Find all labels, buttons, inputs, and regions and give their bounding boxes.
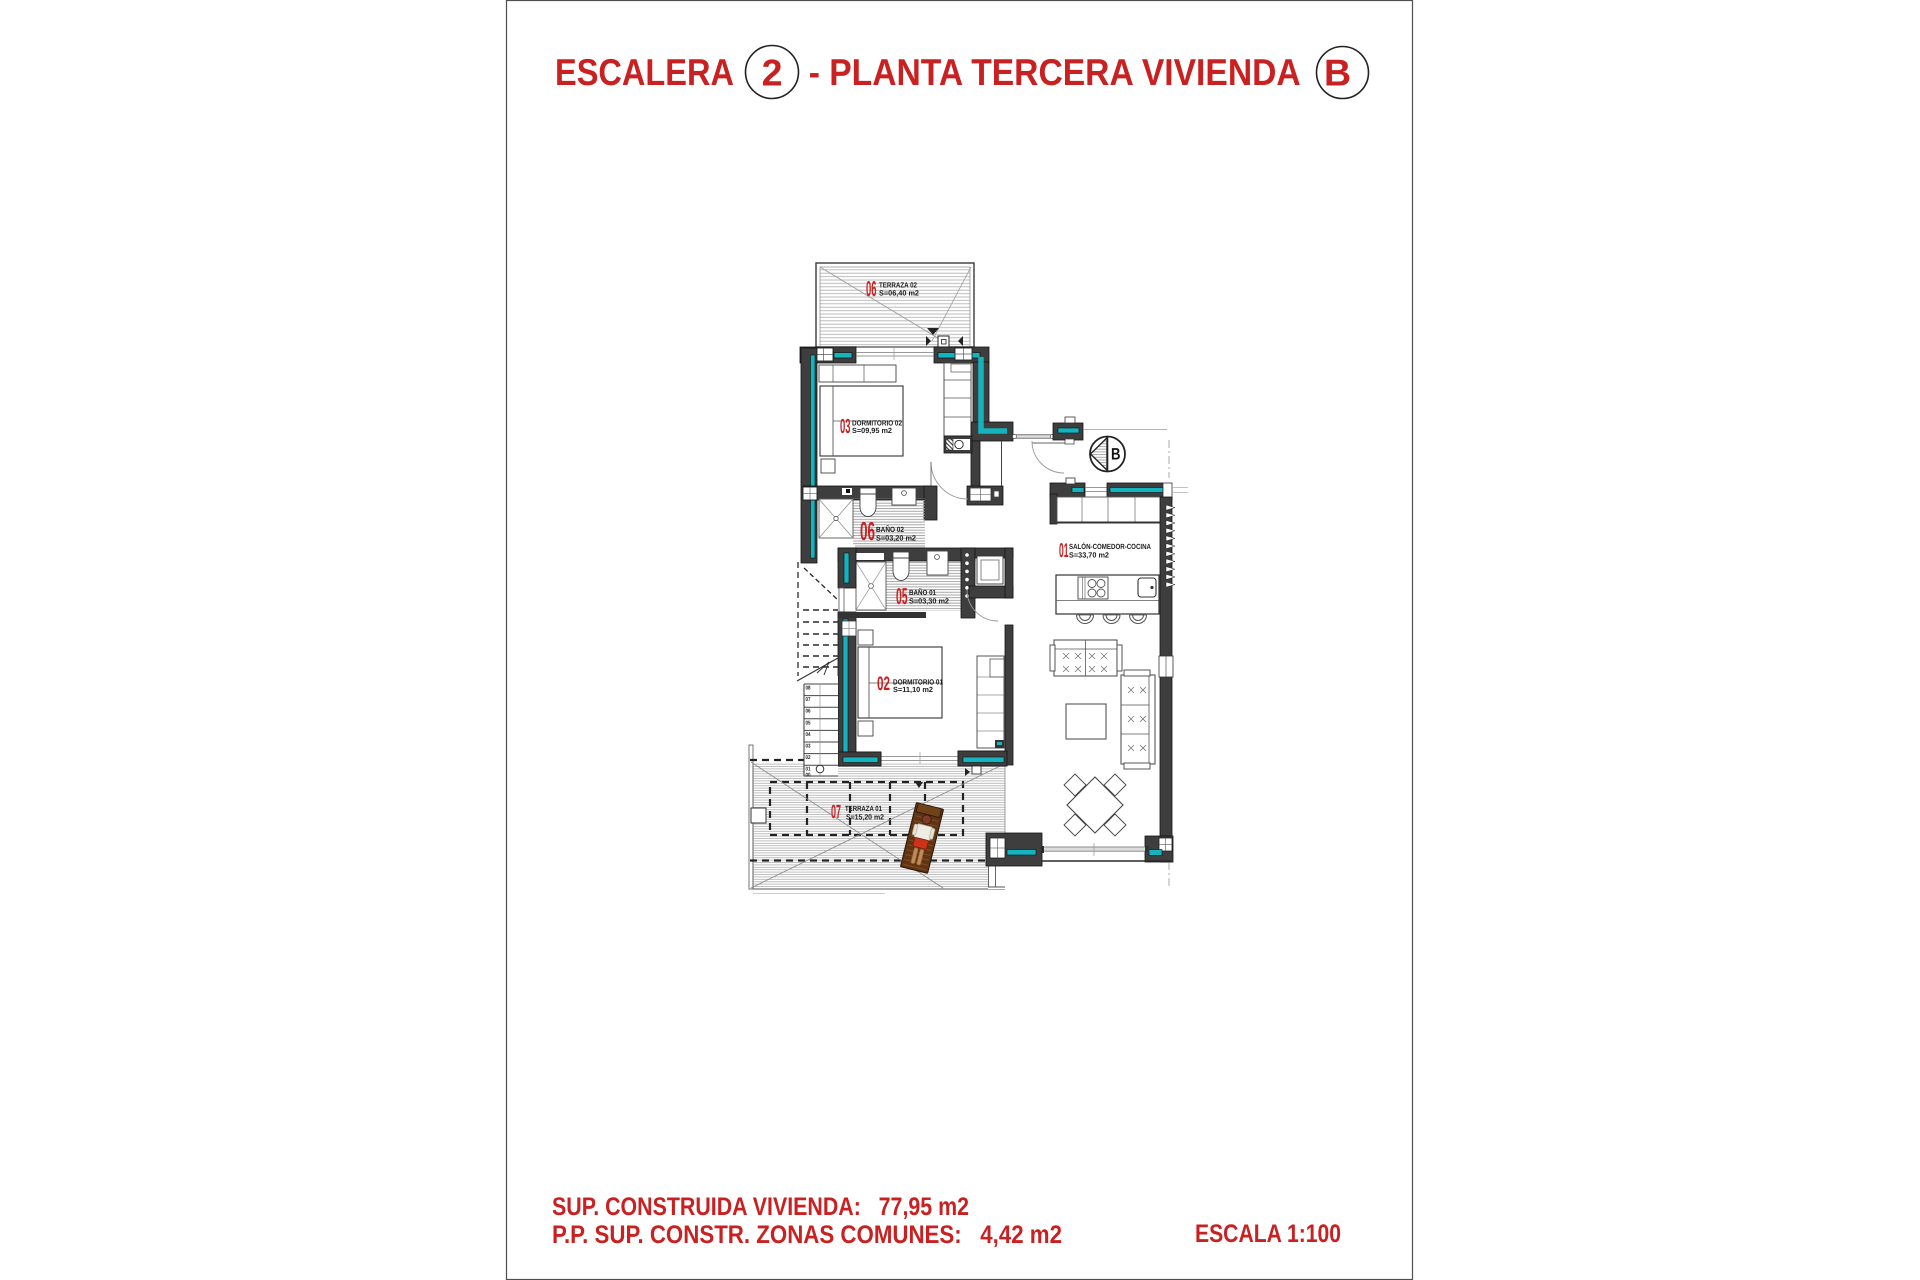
svg-text:08: 08 bbox=[806, 686, 811, 692]
svg-text:05: 05 bbox=[806, 720, 811, 726]
svg-text:06: 06 bbox=[806, 709, 811, 715]
svg-text:S=09,95 m2: S=09,95 m2 bbox=[852, 426, 892, 435]
svg-text:S=15,20 m2: S=15,20 m2 bbox=[846, 813, 884, 822]
svg-text:S=03,20 m2: S=03,20 m2 bbox=[876, 534, 916, 543]
svg-text:06: 06 bbox=[860, 516, 875, 546]
svg-text:B: B bbox=[1111, 446, 1121, 464]
svg-text:01: 01 bbox=[1059, 540, 1069, 562]
svg-text:03: 03 bbox=[806, 744, 811, 750]
svg-text:05: 05 bbox=[896, 583, 908, 609]
svg-text:06: 06 bbox=[866, 277, 877, 301]
svg-text:2: 2 bbox=[762, 52, 783, 94]
svg-text:P.P. SUP. CONSTR. ZONAS COMUNE: P.P. SUP. CONSTR. ZONAS COMUNES: 4,42 m2 bbox=[552, 1221, 1062, 1249]
svg-text:S=03,30 m2: S=03,30 m2 bbox=[909, 597, 949, 606]
svg-text:04: 04 bbox=[806, 732, 812, 738]
svg-text:03: 03 bbox=[840, 415, 851, 438]
svg-text:02: 02 bbox=[877, 673, 890, 695]
svg-text:S=11,10 m2: S=11,10 m2 bbox=[893, 685, 933, 694]
svg-text:SUP. CONSTRUIDA VIVIENDA: 77: SUP. CONSTRUIDA VIVIENDA: 77,95 m2 bbox=[552, 1193, 969, 1221]
svg-text:S=33,70 m2: S=33,70 m2 bbox=[1069, 551, 1109, 560]
svg-text:- PLANTA TERCERA VIVIENDA: - PLANTA TERCERA VIVIENDA bbox=[809, 51, 1301, 93]
svg-text:02: 02 bbox=[806, 755, 811, 761]
svg-text:07: 07 bbox=[831, 802, 841, 823]
svg-text:ESCALERA: ESCALERA bbox=[555, 51, 734, 93]
svg-text:ESCALA 1:100: ESCALA 1:100 bbox=[1195, 1220, 1341, 1248]
svg-text:S=06,40 m2: S=06,40 m2 bbox=[879, 289, 919, 298]
svg-text:07: 07 bbox=[806, 697, 811, 703]
svg-text:00: 00 bbox=[806, 773, 811, 779]
svg-text:B: B bbox=[1324, 51, 1351, 93]
